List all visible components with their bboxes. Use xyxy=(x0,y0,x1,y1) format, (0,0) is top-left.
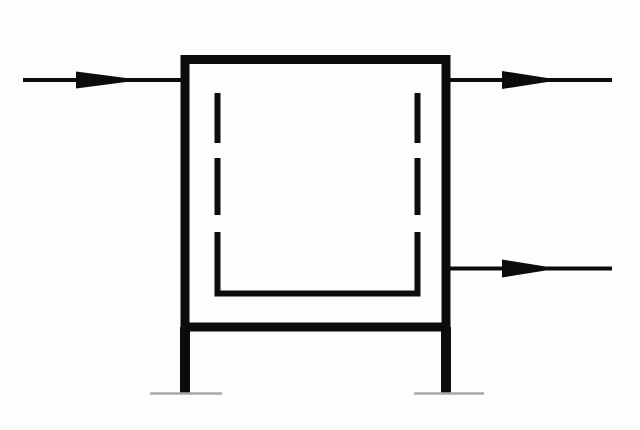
outlet-arrow-top xyxy=(446,71,612,89)
outer-vessel-outline xyxy=(185,60,446,328)
inner-liner-bottom-u xyxy=(218,232,418,294)
outlet-arrowhead-bottom-icon xyxy=(502,260,558,278)
outer-vessel xyxy=(185,60,446,328)
inlet-arrowhead-icon xyxy=(76,72,142,89)
inner-liner xyxy=(218,93,418,294)
outlet-arrow-bottom xyxy=(446,260,612,278)
inlet-arrow xyxy=(23,72,187,89)
schematic-drawing xyxy=(0,0,640,430)
schematic-canvas xyxy=(0,0,640,430)
outlet-arrowhead-top-icon xyxy=(502,71,560,89)
